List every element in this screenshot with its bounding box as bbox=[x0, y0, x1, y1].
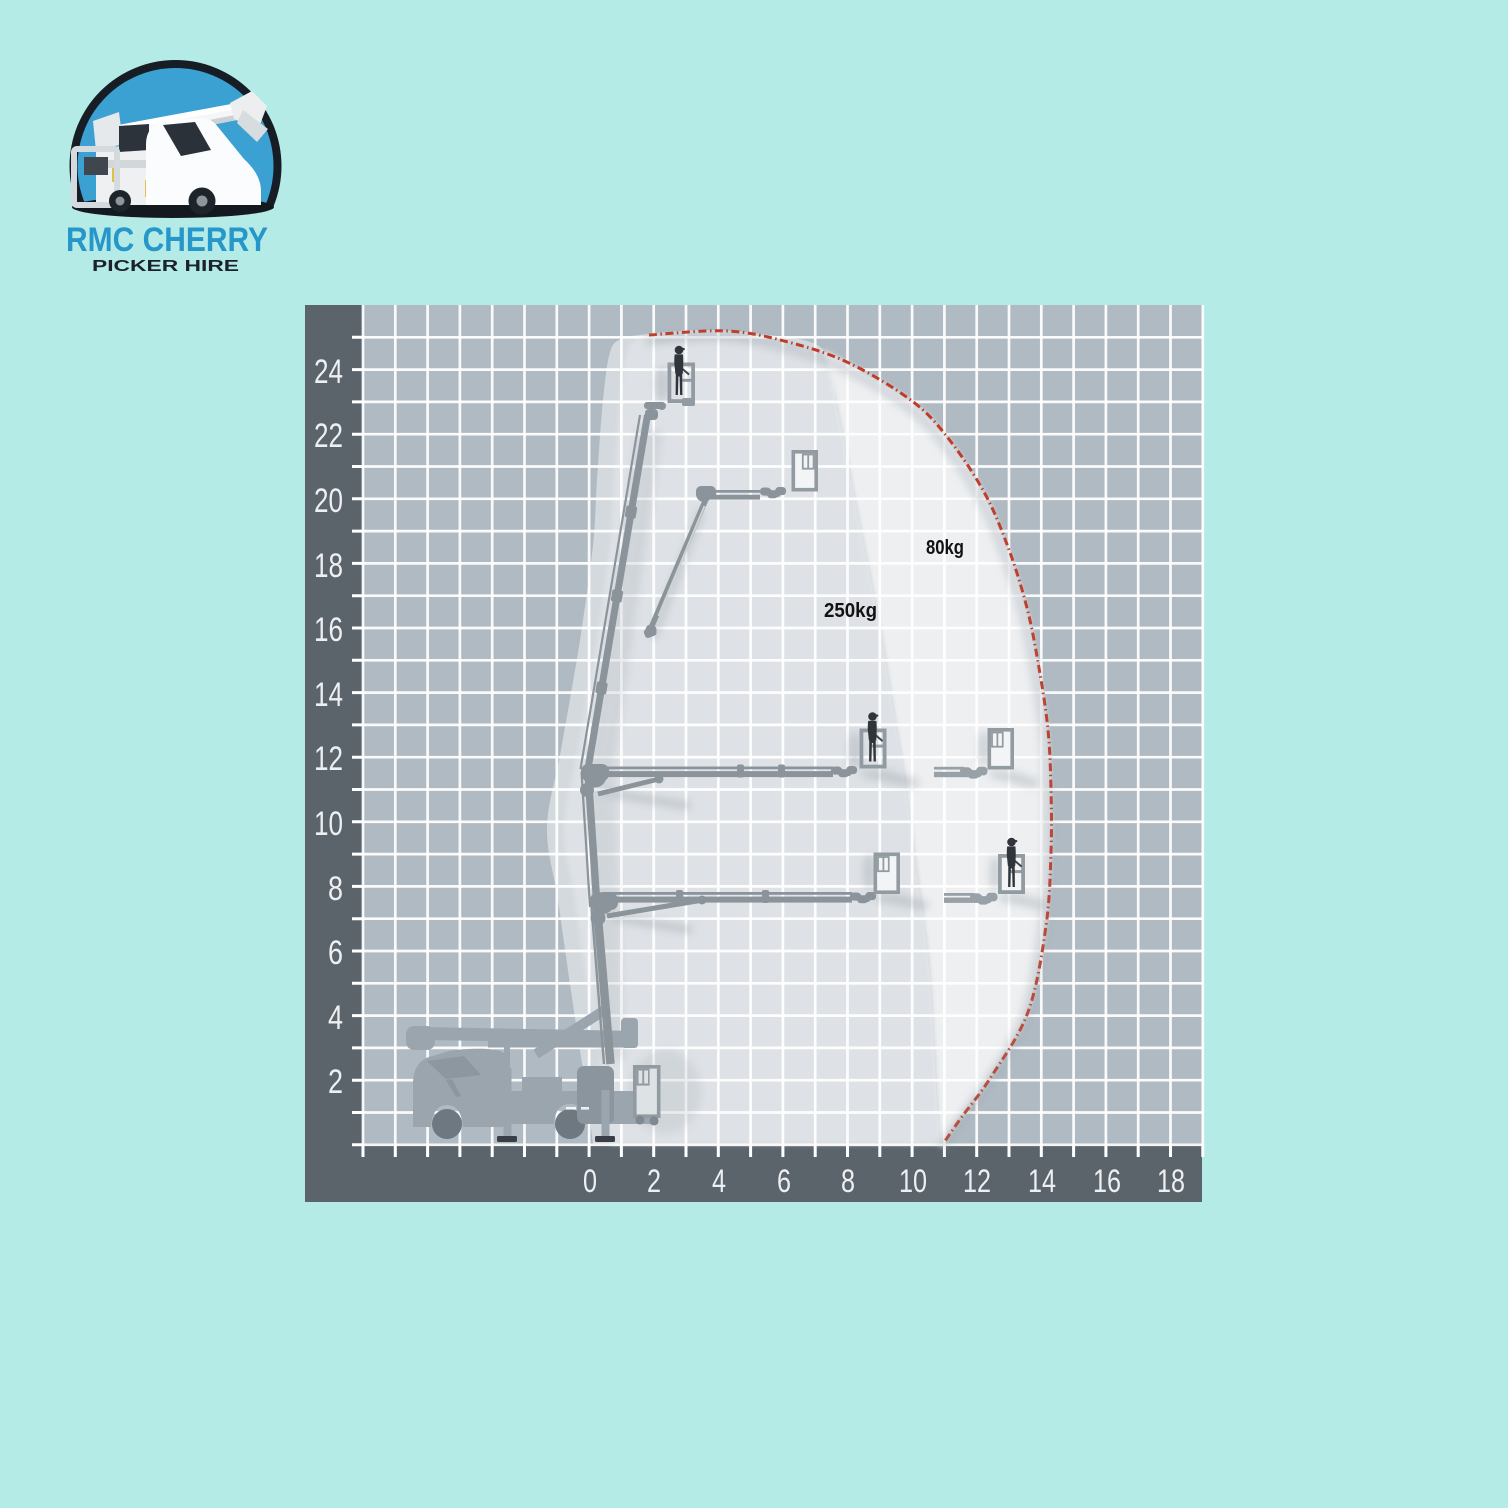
svg-text:16: 16 bbox=[1093, 1163, 1121, 1199]
svg-text:PICKER HIRE: PICKER HIRE bbox=[92, 258, 239, 275]
svg-text:8: 8 bbox=[841, 1163, 855, 1199]
svg-text:22: 22 bbox=[314, 417, 343, 455]
svg-text:80kg: 80kg bbox=[926, 537, 964, 559]
svg-text:2: 2 bbox=[647, 1163, 661, 1199]
svg-text:20: 20 bbox=[314, 482, 343, 520]
svg-text:RMC CHERRY: RMC CHERRY bbox=[66, 221, 268, 259]
svg-text:14: 14 bbox=[1028, 1163, 1056, 1199]
svg-text:10: 10 bbox=[899, 1163, 927, 1199]
svg-text:18: 18 bbox=[314, 547, 343, 585]
svg-text:0: 0 bbox=[583, 1163, 597, 1199]
svg-text:18: 18 bbox=[1157, 1163, 1185, 1199]
svg-text:6: 6 bbox=[328, 934, 343, 972]
svg-text:6: 6 bbox=[777, 1163, 791, 1199]
svg-text:4: 4 bbox=[328, 999, 343, 1037]
svg-text:16: 16 bbox=[314, 611, 343, 649]
svg-text:12: 12 bbox=[314, 740, 343, 778]
svg-text:4: 4 bbox=[712, 1163, 726, 1199]
svg-text:2: 2 bbox=[328, 1063, 343, 1101]
svg-text:12: 12 bbox=[963, 1163, 991, 1199]
svg-text:24: 24 bbox=[314, 353, 343, 391]
svg-text:14: 14 bbox=[314, 676, 343, 714]
svg-text:250kg: 250kg bbox=[824, 600, 877, 622]
svg-text:8: 8 bbox=[328, 870, 343, 908]
svg-text:10: 10 bbox=[314, 805, 343, 843]
